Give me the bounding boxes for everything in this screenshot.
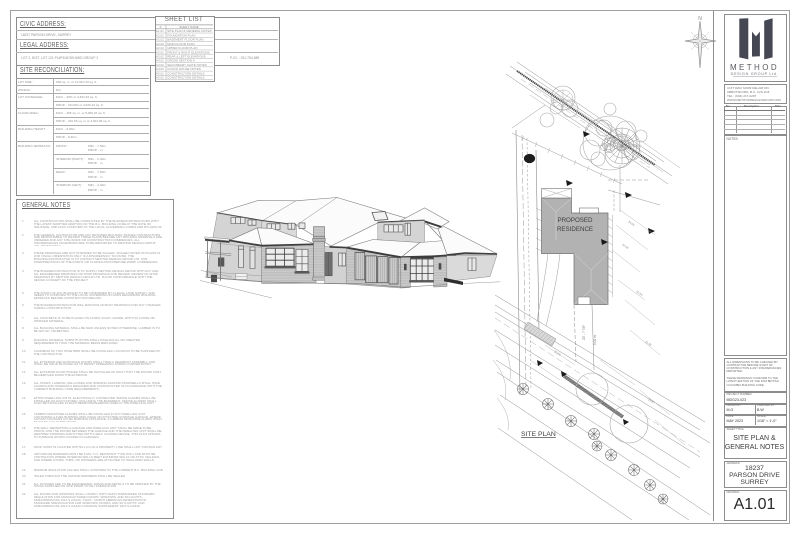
svg-text:29.67: 29.67 xyxy=(647,397,655,404)
svg-text:PROPOSED: PROPOSED xyxy=(557,217,593,224)
svg-text:SITE PLAN: SITE PLAN xyxy=(521,431,556,438)
svg-text:DESIGN GROUP Ltd.: DESIGN GROUP Ltd. xyxy=(731,72,779,76)
svg-text:20' - 7 7/8": 20' - 7 7/8" xyxy=(582,325,586,340)
svg-text:RESIDENCE: RESIDENCE xyxy=(557,226,593,233)
svg-text:34.05: 34.05 xyxy=(627,220,635,228)
svg-text:METHOD: METHOD xyxy=(730,63,779,72)
svg-text:31.95: 31.95 xyxy=(644,340,652,348)
svg-text:30.22: 30.22 xyxy=(553,349,561,356)
svg-text:33.48: 33.48 xyxy=(621,243,629,251)
svg-text:9.04 m: 9.04 m xyxy=(593,335,597,345)
svg-text:N: N xyxy=(698,16,702,22)
